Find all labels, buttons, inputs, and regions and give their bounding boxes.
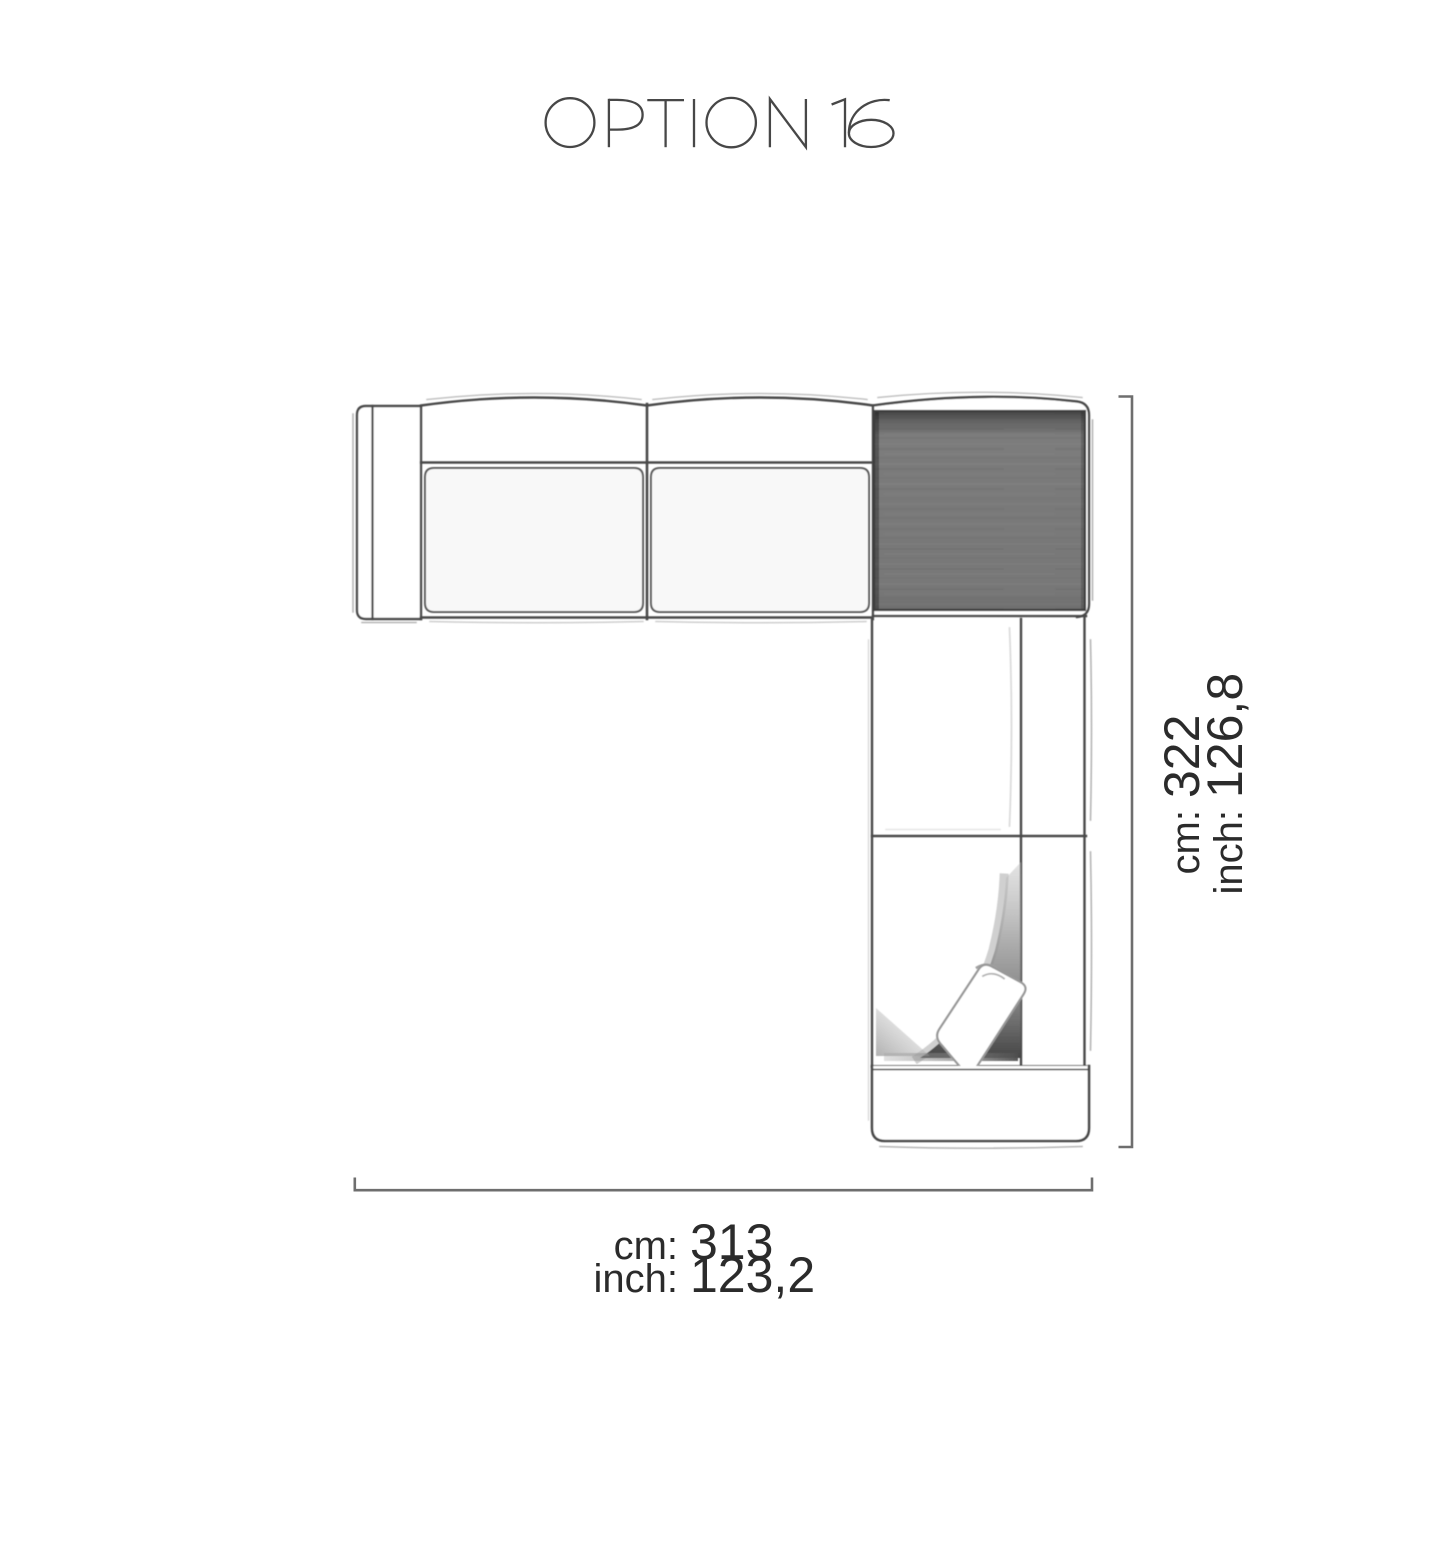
svg-text:inch:: inch: [1207, 810, 1251, 895]
svg-text:123,2: 123,2 [690, 1247, 815, 1303]
svg-text:inch:: inch: [594, 1257, 679, 1301]
svg-text:126,8: 126,8 [1197, 673, 1253, 798]
svg-text:cm:: cm: [1164, 810, 1208, 874]
